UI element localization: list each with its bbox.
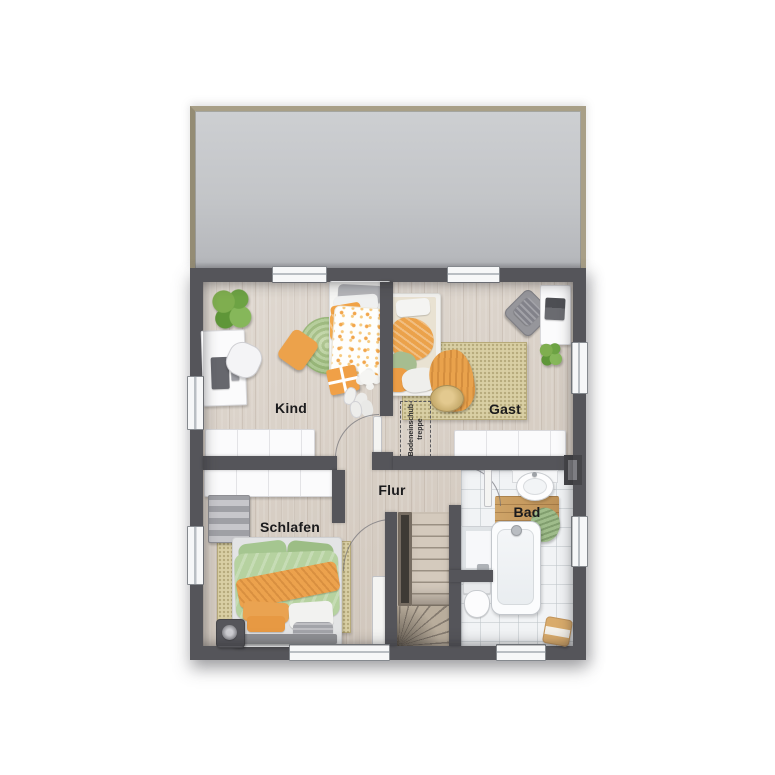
bathtub-icon [491, 521, 541, 615]
room-label-kind: Kind [275, 400, 307, 416]
window-icon [187, 376, 204, 430]
cushion-icon [512, 296, 543, 327]
plant-icon [539, 343, 563, 367]
roof-block [190, 106, 586, 269]
room-label-bad: Bad [513, 504, 540, 520]
wall-gast-flur [393, 456, 573, 470]
attic-hatch-label-line1: Bodeneinschub- [406, 402, 415, 457]
window-icon [571, 516, 588, 567]
wall-kind-gast [380, 282, 393, 416]
window-icon [447, 266, 500, 283]
stairs-winder-icon [397, 606, 449, 646]
window-icon [571, 342, 588, 394]
footboard-icon [237, 634, 337, 644]
basin-icon [523, 478, 547, 495]
stair-railing-icon [398, 512, 412, 606]
attic-hatch-label-line2: treppe [416, 402, 425, 457]
toilet-icon [461, 581, 491, 617]
door-leaf-icon [484, 467, 492, 507]
wall-schlafen-flur [332, 470, 345, 523]
window-icon [496, 644, 546, 661]
attic-hatch-label: Bodeneinschub- treppe [406, 402, 424, 457]
dresser-icon [208, 495, 250, 543]
window-icon [289, 644, 390, 661]
straw-pouf-icon [430, 385, 464, 412]
wall-stairwell [385, 512, 397, 646]
speaker-icon [216, 619, 245, 648]
room-label-flur: Flur [378, 482, 405, 498]
sideboard-icon [205, 429, 315, 458]
faucet-icon [511, 525, 522, 536]
sink-icon [516, 472, 554, 501]
chimney-icon [564, 455, 582, 485]
room-label-gast: Gast [489, 401, 521, 417]
desk-icon [540, 285, 571, 345]
floor-plan-canvas: Bodeneinschub- treppe Kind Gast Flur Sch… [0, 0, 775, 775]
speaker-cone-icon [222, 625, 237, 640]
flower-pillow-icon [360, 370, 376, 385]
pillow-icon [247, 616, 285, 632]
window-icon [187, 526, 204, 585]
wall-toilet-partition [449, 570, 493, 582]
stairs-icon [412, 514, 449, 606]
plant-icon [211, 289, 253, 331]
laptop-icon [544, 297, 565, 320]
window-icon [272, 266, 327, 283]
wall-corner-block [372, 452, 393, 470]
toilet-bowl-icon [464, 590, 490, 618]
bed-icon [232, 537, 342, 647]
stool-icon [542, 616, 573, 647]
room-label-schlafen: Schlafen [260, 519, 320, 535]
attic-hatch-icon: Bodeneinschub- treppe [400, 401, 431, 457]
pillow-icon [395, 298, 430, 318]
wall-kind-schlafen [203, 456, 337, 470]
faucet-icon [532, 472, 537, 477]
tub-basin-icon [497, 529, 534, 605]
